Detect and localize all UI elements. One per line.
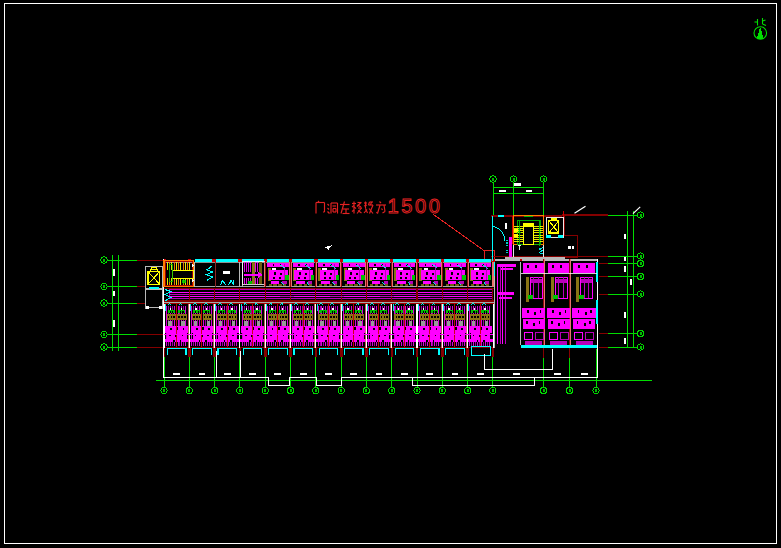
svg-text:1500: 1500 — [388, 195, 443, 217]
